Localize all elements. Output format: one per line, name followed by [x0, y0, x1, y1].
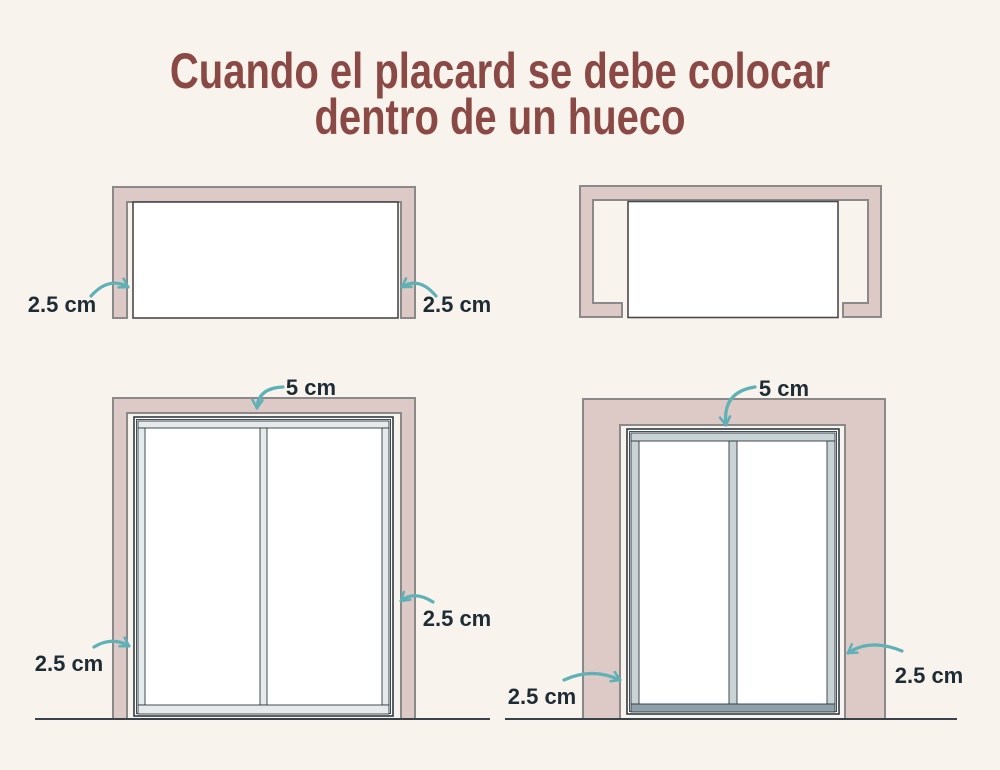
closet-front-thin	[134, 417, 393, 716]
closet-center-divider	[729, 441, 737, 704]
diagram-canvas: 2.5 cm 2.5 cm 5 cm 2.5 cm 2.5 cm	[0, 0, 1000, 770]
placard-plan-open	[133, 202, 398, 318]
dimension-label-bottom-left: 2.5 cm	[35, 651, 104, 676]
diagram-plan-returned-niche	[580, 186, 881, 318]
diagram-front-thin-walls: 5 cm 2.5 cm 2.5 cm	[35, 375, 492, 719]
closet-front-thick	[627, 429, 839, 714]
dimension-label-bottom-left: 2.5 cm	[508, 684, 577, 709]
dimension-label-left: 2.5 cm	[28, 292, 97, 317]
closet-center-divider	[260, 428, 267, 705]
diagram-plan-open-niche: 2.5 cm 2.5 cm	[28, 187, 492, 318]
dimension-label-right: 2.5 cm	[895, 663, 964, 688]
closet-bottom-track	[138, 705, 389, 714]
closet-top-track	[631, 433, 835, 441]
dimension-label-right: 2.5 cm	[423, 292, 492, 317]
closet-right-stile	[827, 441, 835, 704]
dimension-label-right: 2.5 cm	[423, 606, 492, 631]
placard-plan-returns	[628, 202, 838, 318]
closet-top-track	[138, 421, 389, 428]
dimension-label-top: 5 cm	[759, 376, 809, 401]
closet-right-stile	[382, 428, 389, 705]
dimension-label-top: 5 cm	[286, 375, 336, 400]
closet-bottom-track	[631, 704, 835, 712]
closet-left-stile	[138, 428, 145, 705]
diagram-front-thick-walls: 5 cm 2.5 cm 2.5 cm	[505, 376, 963, 719]
closet-left-stile	[631, 441, 639, 704]
